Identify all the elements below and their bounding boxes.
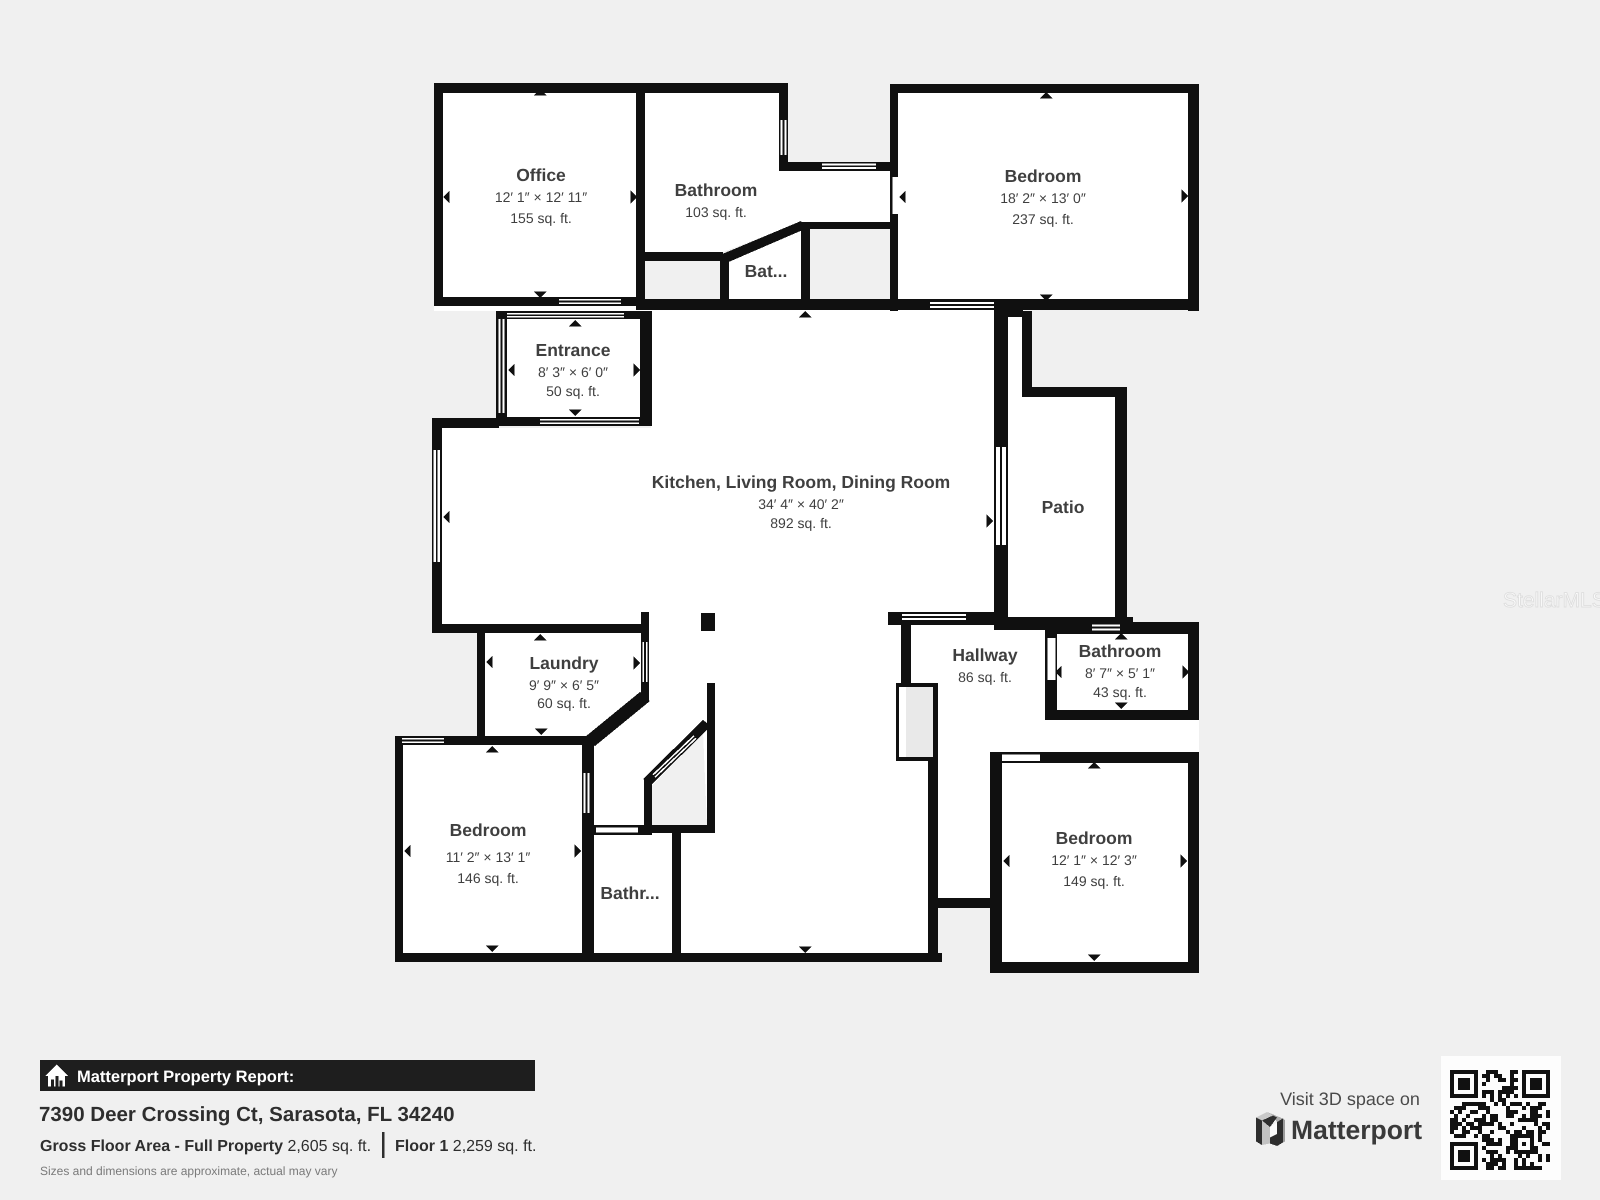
svg-text:Bedroom: Bedroom: [450, 820, 527, 840]
svg-text:Gross Floor Area - Full Proper: Gross Floor Area - Full Property 2,605 s…: [40, 1138, 371, 1155]
svg-text:149 sq. ft.: 149 sq. ft.: [1063, 873, 1124, 889]
svg-text:9′ 9″ × 6′ 5″: 9′ 9″ × 6′ 5″: [529, 677, 599, 693]
svg-text:Visit 3D space on: Visit 3D space on: [1280, 1089, 1420, 1109]
svg-text:12′ 1″ × 12′ 3″: 12′ 1″ × 12′ 3″: [1051, 852, 1137, 868]
svg-text:Bathroom: Bathroom: [675, 180, 758, 200]
svg-text:Entrance: Entrance: [536, 340, 611, 360]
svg-text:12′ 1″ × 12′ 11″: 12′ 1″ × 12′ 11″: [495, 189, 587, 205]
svg-text:892 sq. ft.: 892 sq. ft.: [770, 515, 831, 531]
svg-text:8′ 7″ × 5′ 1″: 8′ 7″ × 5′ 1″: [1085, 665, 1155, 681]
svg-text:Kitchen, Living Room, Dining R: Kitchen, Living Room, Dining Room: [652, 472, 950, 492]
svg-text:Bathr...: Bathr...: [600, 883, 659, 903]
svg-text:86 sq. ft.: 86 sq. ft.: [958, 669, 1012, 685]
svg-text:50 sq. ft.: 50 sq. ft.: [546, 383, 600, 399]
svg-text:43 sq. ft.: 43 sq. ft.: [1093, 684, 1147, 700]
svg-text:155 sq. ft.: 155 sq. ft.: [510, 210, 571, 226]
svg-text:Laundry: Laundry: [529, 653, 598, 673]
svg-text:Bat...: Bat...: [745, 261, 788, 281]
svg-text:Bedroom: Bedroom: [1005, 166, 1082, 186]
svg-text:146 sq. ft.: 146 sq. ft.: [457, 870, 518, 886]
svg-text:7390 Deer Crossing Ct, Sarasot: 7390 Deer Crossing Ct, Sarasota, FL 3424…: [39, 1103, 455, 1126]
svg-text:237 sq. ft.: 237 sq. ft.: [1012, 211, 1073, 227]
svg-text:11′ 2″ × 13′ 1″: 11′ 2″ × 13′ 1″: [446, 849, 531, 865]
svg-text:Bathroom: Bathroom: [1079, 641, 1162, 661]
svg-text:Sizes and dimensions are appro: Sizes and dimensions are approximate, ac…: [40, 1164, 337, 1178]
svg-text:Patio: Patio: [1042, 497, 1085, 517]
svg-text:Floor 1 2,259 sq. ft.: Floor 1 2,259 sq. ft.: [395, 1138, 536, 1155]
svg-text:60 sq. ft.: 60 sq. ft.: [537, 695, 591, 711]
svg-text:18′ 2″ × 13′ 0″: 18′ 2″ × 13′ 0″: [1000, 190, 1086, 206]
svg-text:Matterport Property Report:: Matterport Property Report:: [77, 1068, 294, 1086]
svg-text:Hallway: Hallway: [952, 645, 1017, 665]
svg-text:Matterport: Matterport: [1291, 1115, 1422, 1145]
svg-text:Office: Office: [516, 165, 566, 185]
svg-text:StellarMLS: StellarMLS: [1503, 589, 1600, 612]
svg-text:8′ 3″ × 6′ 0″: 8′ 3″ × 6′ 0″: [538, 364, 608, 380]
svg-text:Bedroom: Bedroom: [1056, 828, 1133, 848]
svg-text:103 sq. ft.: 103 sq. ft.: [685, 204, 746, 220]
svg-text:34′ 4″ × 40′ 2″: 34′ 4″ × 40′ 2″: [758, 496, 844, 512]
